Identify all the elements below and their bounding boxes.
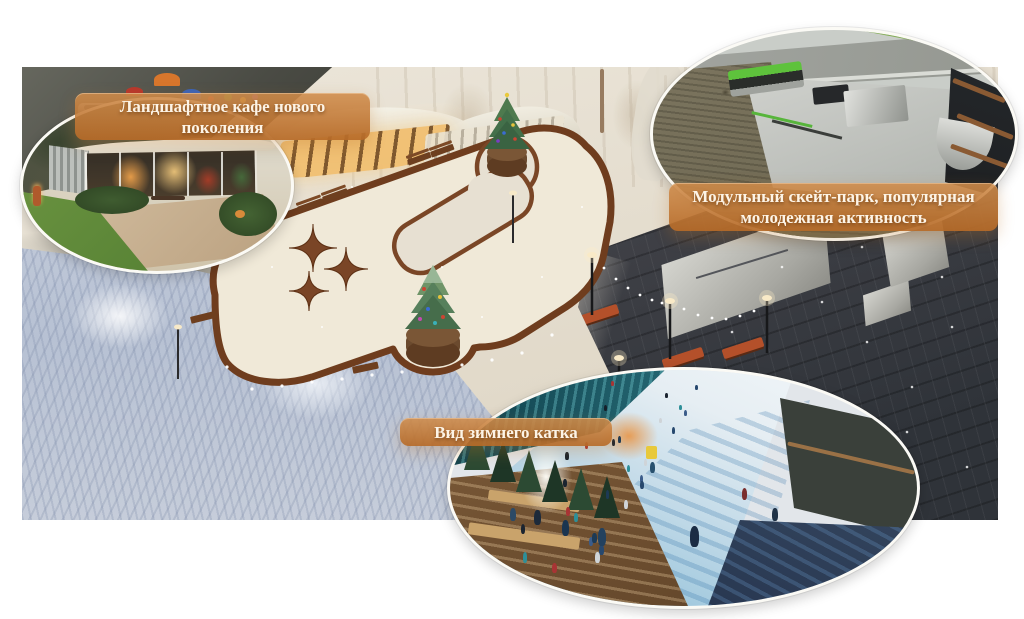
skaters-crowd (450, 370, 917, 606)
callout-skatepark-label: Модульный скейт-парк, популярная молодеж… (669, 183, 998, 231)
skater-figure (772, 508, 778, 521)
skater-figure (644, 459, 647, 466)
skater-figure (672, 427, 675, 434)
callout-cafe-label: Ландшафтное кафе нового поколения (75, 93, 370, 140)
skater-figure (534, 510, 541, 525)
skater-figure (624, 500, 628, 509)
cafe-light-bollard (33, 186, 41, 206)
skatepark-kicker-ramp (843, 85, 908, 127)
cafe-flowers (235, 210, 245, 218)
skater-figure (574, 513, 578, 522)
skater-figure (684, 410, 687, 416)
skater-figure (742, 488, 747, 500)
skater-figure (566, 507, 570, 516)
skater-figure (665, 393, 668, 398)
skater-figure (695, 385, 698, 390)
cyclist-figure (997, 80, 1004, 89)
skater-figure (659, 418, 662, 424)
cafe-patio-table (151, 196, 185, 200)
cafe-photo-fence (49, 145, 89, 195)
skater-figure (510, 508, 516, 521)
skater-figure (690, 526, 699, 547)
inset-rink-photo (447, 367, 920, 609)
skater-figure (679, 405, 682, 411)
skater-figure (514, 577, 519, 588)
skater-figure (627, 465, 630, 472)
skater-figure (595, 552, 600, 563)
skater-figure (552, 563, 557, 573)
skater-figure (521, 524, 525, 534)
winter-park-concept-poster: Ландшафтное кафе нового поколения Модуль… (0, 0, 1024, 619)
skater-figure (598, 528, 606, 546)
skater-figure (611, 381, 614, 386)
skater-figure (606, 490, 610, 498)
skater-figure (565, 452, 568, 460)
skater-figure (563, 479, 567, 487)
skater-figure (650, 462, 655, 473)
cafe-shrub (219, 192, 277, 236)
cafe-shrub (75, 186, 149, 214)
skater-figure (640, 481, 644, 490)
skater-figure (523, 552, 528, 563)
skater-figure (604, 405, 607, 411)
skater-figure (612, 439, 615, 446)
callout-rink-label: Вид зимнего катка (400, 418, 612, 446)
skater-figure (562, 520, 569, 536)
string-lights (603, 267, 756, 321)
skater-figure (618, 436, 621, 442)
skater-figure (592, 533, 596, 543)
